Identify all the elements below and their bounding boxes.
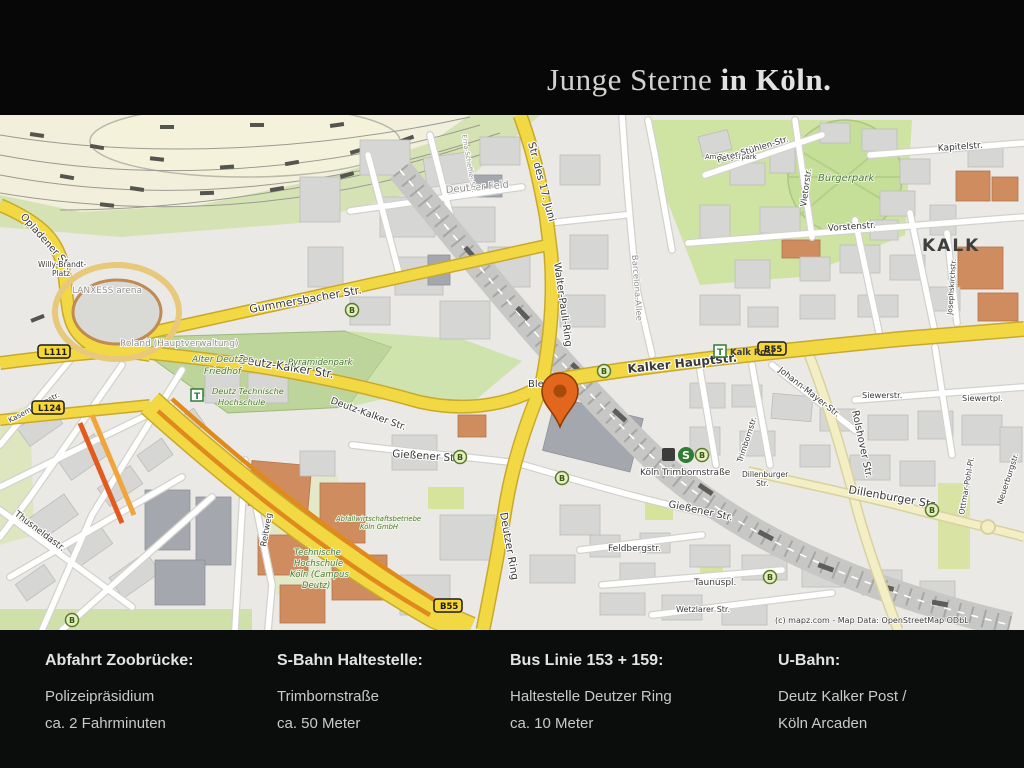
slide: Junge Sterne in Köln. bbox=[0, 0, 1024, 768]
place-label-willy-brandt-platz-1: Willy-Brandt- bbox=[38, 260, 87, 269]
footer-line: ca. 2 Fahrminuten bbox=[45, 715, 166, 732]
map-canvas: Opladener Str. Willy-Brandt- Platz LANXE… bbox=[0, 115, 1024, 630]
poi-label-abfall-2: Köln GmbH bbox=[360, 523, 398, 531]
tram-stop-deutz-th: T bbox=[191, 389, 203, 402]
title-regular: Junge Sterne bbox=[547, 62, 712, 97]
poi-label-th-koeln-2: Hochschule bbox=[294, 559, 343, 569]
road-badge-b55-south: B55 bbox=[434, 599, 462, 612]
svg-text:B: B bbox=[457, 453, 463, 462]
svg-text:B: B bbox=[767, 573, 773, 582]
street-label-feldbergstr: Feldbergstr. bbox=[608, 544, 661, 554]
footer-heading: Bus Linie 153 + 159: bbox=[510, 652, 663, 670]
svg-text:B: B bbox=[601, 367, 607, 376]
poi-label-roland: Roland (Hauptverwaltung) bbox=[120, 339, 239, 349]
poi-label-th-koeln-3: Köln (Campus bbox=[290, 570, 349, 580]
park-label-buergerpark: Bürgerpark bbox=[818, 173, 876, 184]
street-label-dillenburger-small-2: Str. bbox=[756, 479, 768, 488]
poi-label-abfall-1: Abfallwirtschaftsbetriebe bbox=[335, 515, 421, 523]
sbahn-icon: S bbox=[682, 449, 690, 462]
footer-line: Polizeipräsidium bbox=[45, 688, 154, 705]
svg-text:B: B bbox=[559, 474, 565, 483]
title-bold: in Köln. bbox=[721, 62, 832, 97]
footer-line: Deutz Kalker Post / bbox=[778, 688, 906, 705]
svg-text:T: T bbox=[717, 348, 724, 358]
footer-line: ca. 50 Meter bbox=[277, 715, 360, 732]
map-attribution: (c) mapz.com - Map Data: OpenStreetMap O… bbox=[775, 616, 969, 625]
street-label-siewertpl: Siewertpl. bbox=[962, 393, 1003, 403]
footer-bar: Abfahrt Zoobrücke: Polizeipräsidium ca. … bbox=[0, 630, 1024, 768]
footer-line: Haltestelle Deutzer Ring bbox=[510, 688, 672, 705]
street-label-siewerstr: Siewerstr. bbox=[862, 390, 902, 400]
footer-line: ca. 10 Meter bbox=[510, 715, 593, 732]
poi-label-deutz-th-2: Hochschule bbox=[218, 397, 265, 407]
station-label-koeln-trimbornstrasse: Köln Trimbornstraße bbox=[640, 468, 731, 478]
svg-text:L111: L111 bbox=[44, 348, 67, 358]
svg-text:B: B bbox=[699, 451, 705, 460]
svg-text:B: B bbox=[349, 306, 355, 315]
park-label-pyramidenpark: Pyramidenpark bbox=[288, 358, 354, 368]
svg-text:L124: L124 bbox=[38, 404, 61, 414]
footer-heading: S-Bahn Haltestelle: bbox=[277, 652, 423, 670]
poi-label-th-koeln-1: Technische bbox=[294, 548, 341, 558]
map: Opladener Str. Willy-Brandt- Platz LANXE… bbox=[0, 115, 1024, 630]
footer-heading: Abfahrt Zoobrücke: bbox=[45, 652, 193, 670]
tram-stop-label-kalk-post: Kalk Post bbox=[730, 348, 775, 358]
poi-label-lanxess-arena: LANXESS arena bbox=[72, 286, 142, 296]
poi-label-th-koeln-4: Deutz) bbox=[302, 581, 330, 591]
title-bar: Junge Sterne in Köln. bbox=[0, 0, 1024, 115]
sbahn-station-trimbornstrasse: S B bbox=[662, 447, 709, 463]
road-badge-l111: L111 bbox=[38, 345, 70, 358]
city-label-kalk: KALK bbox=[922, 236, 980, 256]
page-title: Junge Sterne in Köln. bbox=[547, 62, 831, 98]
footer-line: Trimbornstraße bbox=[277, 688, 379, 705]
street-label-taunuspl: Taunuspl. bbox=[693, 578, 736, 588]
poi-label-deutz-th-1: Deutz Technische bbox=[212, 386, 284, 396]
road-badge-l124: L124 bbox=[32, 401, 64, 414]
area-label-friedhof-1: Alter Deutzer bbox=[191, 355, 253, 365]
footer-line: Köln Arcaden bbox=[778, 715, 867, 732]
svg-text:T: T bbox=[194, 392, 201, 402]
svg-text:B55: B55 bbox=[440, 602, 458, 612]
svg-text:B: B bbox=[69, 616, 75, 625]
footer-heading: U-Bahn: bbox=[778, 652, 840, 670]
svg-text:B: B bbox=[929, 506, 935, 515]
street-label-dillenburger-small-1: Dillenburger bbox=[742, 470, 789, 479]
place-label-willy-brandt-platz-2: Platz bbox=[52, 269, 70, 278]
street-label-wetzlarer-str: Wetzlarer Str. bbox=[676, 605, 730, 614]
area-label-friedhof-2: Friedhof bbox=[204, 367, 243, 377]
